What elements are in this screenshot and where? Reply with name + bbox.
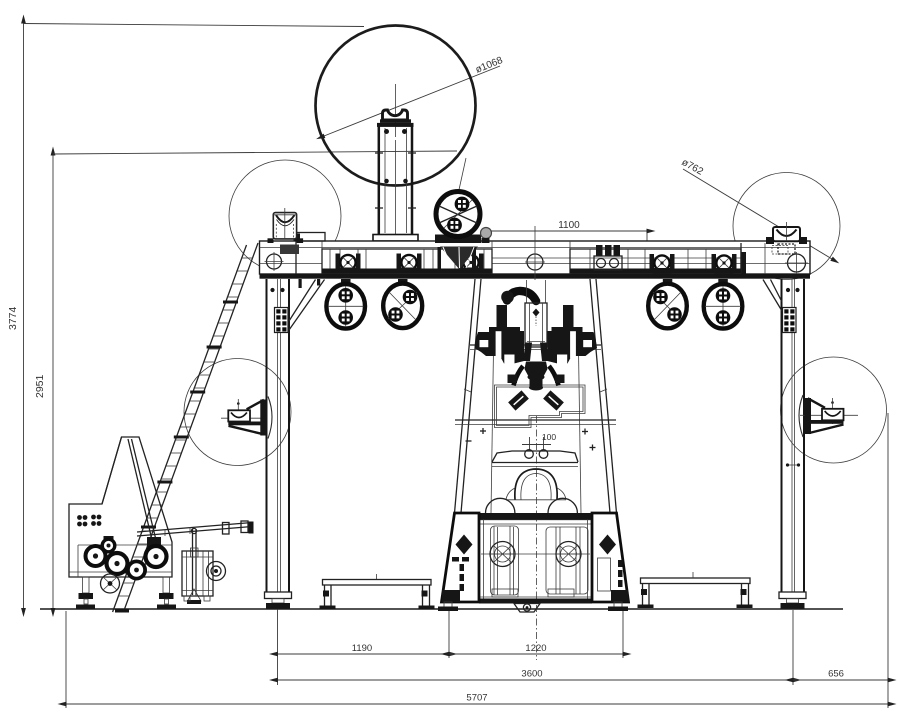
svg-text:1220: 1220	[525, 643, 546, 654]
svg-text:1100: 1100	[558, 220, 580, 231]
svg-text:3600: 3600	[521, 669, 542, 680]
svg-text:1190: 1190	[352, 643, 372, 654]
svg-text:100: 100	[542, 432, 556, 442]
svg-text:656: 656	[828, 669, 844, 680]
svg-text:ø1068: ø1068	[474, 55, 505, 76]
svg-text:5707: 5707	[466, 693, 487, 704]
svg-text:2951: 2951	[34, 374, 46, 398]
svg-text:3774: 3774	[7, 306, 19, 330]
